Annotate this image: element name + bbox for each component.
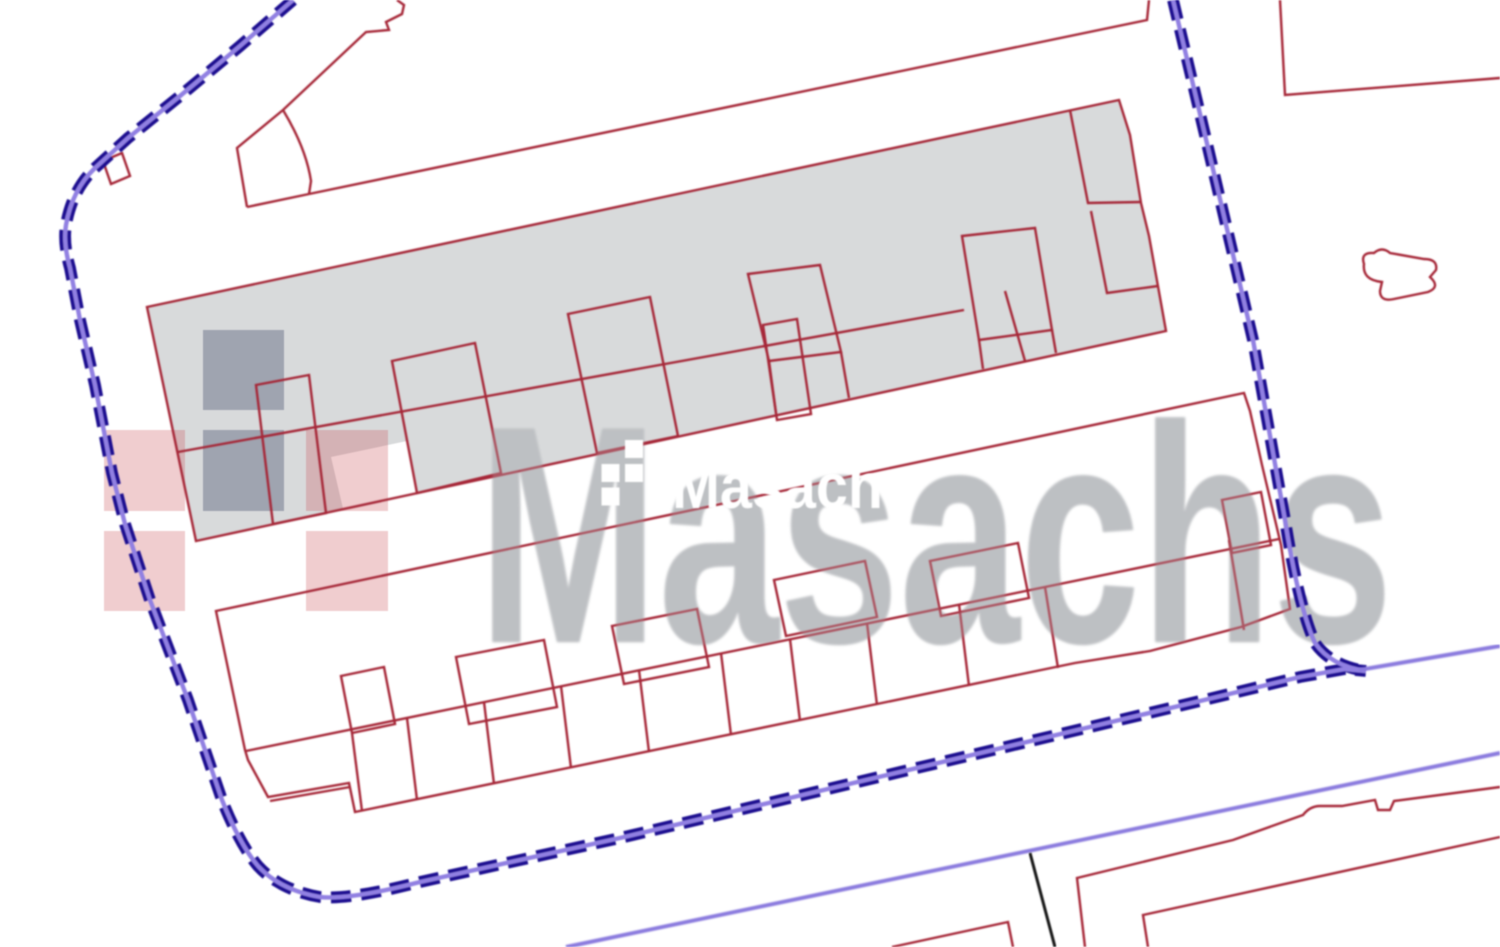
svg-text:Masachs: Masachs — [478, 361, 1393, 708]
svg-text:Masachs: Masachs — [672, 450, 915, 522]
